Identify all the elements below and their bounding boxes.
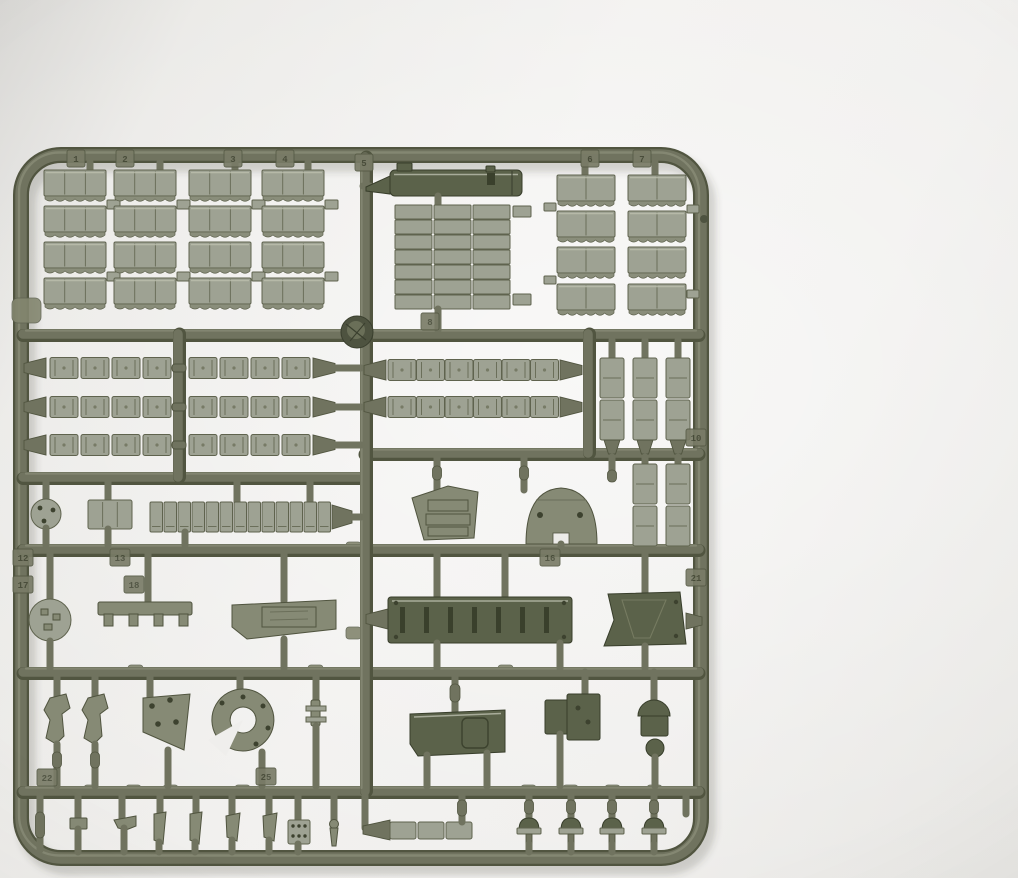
part-number-tag-3: 3: [224, 150, 242, 167]
gusset-plate-part: [143, 676, 190, 786]
perforated-plate-part: [288, 820, 310, 844]
svg-text:10: 10: [691, 434, 702, 444]
part-number-tag-6: 6: [581, 150, 599, 167]
hull-panel-part: [410, 676, 505, 786]
track-pad-stack-6: [628, 175, 699, 315]
svg-text:22: 22: [42, 774, 53, 784]
dome-hatch-part: [520, 457, 598, 549]
track-pad-stack-2: [114, 170, 190, 309]
clamp-handle-part-3: [600, 795, 624, 852]
track-link-pairs-upper: [600, 340, 690, 454]
track-pad-stack-5: [544, 175, 615, 315]
stepped-bracket-part: [545, 672, 600, 786]
part-number-tag-7: 7: [633, 150, 651, 167]
part-number-tag-25: 25: [256, 768, 276, 785]
frame-blemish: [700, 215, 708, 223]
mount-bracket-part: [412, 457, 478, 540]
svg-text:18: 18: [129, 581, 140, 591]
svg-text:12: 12: [18, 554, 29, 564]
track-pad-stack-4: [262, 170, 338, 309]
runner-rail-3-left: [23, 474, 365, 479]
svg-text:1: 1: [73, 155, 79, 165]
sprue-photo: 1 2 3 4 5 6 7 8 10 12 13 16 17 18 21 22 …: [0, 0, 1018, 878]
part-number-tag-22: 22: [37, 769, 57, 786]
svg-text:3: 3: [230, 155, 235, 165]
svg-text:13: 13: [115, 554, 126, 564]
section-e: [44, 672, 670, 786]
clamp-handle-part-1: [517, 795, 541, 852]
track-link-row-4: [364, 360, 582, 381]
knob-fitting-part: [638, 672, 670, 786]
svg-text:25: 25: [261, 773, 272, 783]
track-link-row-5: [364, 397, 582, 418]
part-number-tag-16: 16: [540, 549, 560, 566]
injection-gate: [341, 316, 373, 348]
part-number-tag-12: 12: [13, 549, 33, 566]
part-number-tag-18: 18: [124, 576, 144, 593]
photo-canvas: Photograph of an olive-drab injection-mo…: [0, 0, 1018, 878]
svg-text:17: 17: [18, 581, 29, 591]
svg-text:5: 5: [361, 159, 366, 169]
part-number-tag-5: 5: [355, 154, 373, 171]
svg-text:8: 8: [427, 318, 432, 328]
track-pad-stack-1: [44, 170, 120, 309]
svg-text:7: 7: [639, 155, 644, 165]
svg-text:16: 16: [545, 554, 556, 564]
part-number-tag-8: 8: [421, 313, 439, 330]
clamp-handle-part-2: [559, 795, 583, 852]
part-number-tag-10: 10: [686, 429, 706, 446]
track-link-row-3: [24, 435, 361, 456]
part-number-tag-21: 21: [686, 569, 706, 586]
svg-text:21: 21: [691, 574, 702, 584]
tow-hook-part-2: [82, 676, 108, 786]
clamp-handle-part-4: [642, 795, 666, 852]
part-number-tag-2: 2: [116, 150, 134, 167]
bottle-fitting-part: [330, 820, 339, 847]
track-link-strip: [150, 481, 361, 545]
runner-vertical-center: [362, 157, 367, 791]
bottom-section: [36, 791, 687, 852]
svg-text:6: 6: [587, 155, 592, 165]
track-link-row-1: [24, 358, 361, 379]
track-pad-triple: [88, 481, 132, 545]
track-link-pairs-lower: [608, 457, 691, 546]
svg-text:4: 4: [282, 155, 288, 165]
slotted-plate-part: [366, 553, 572, 668]
svg-text:2: 2: [122, 155, 127, 165]
fender-part: [232, 553, 336, 668]
track-pad-stack-3: [189, 170, 265, 309]
track-link-row-2: [24, 397, 361, 418]
runner-vertical-mid-right: [588, 334, 590, 453]
part-number-tag-4: 4: [276, 150, 294, 167]
small-clip-part: [306, 676, 326, 786]
part-number-tag-1: 1: [67, 150, 85, 167]
part-number-tag-13: 13: [110, 549, 130, 566]
part-number-tag-17: 17: [13, 576, 33, 593]
track-pad-block: [395, 196, 531, 330]
section-c: [31, 457, 597, 549]
